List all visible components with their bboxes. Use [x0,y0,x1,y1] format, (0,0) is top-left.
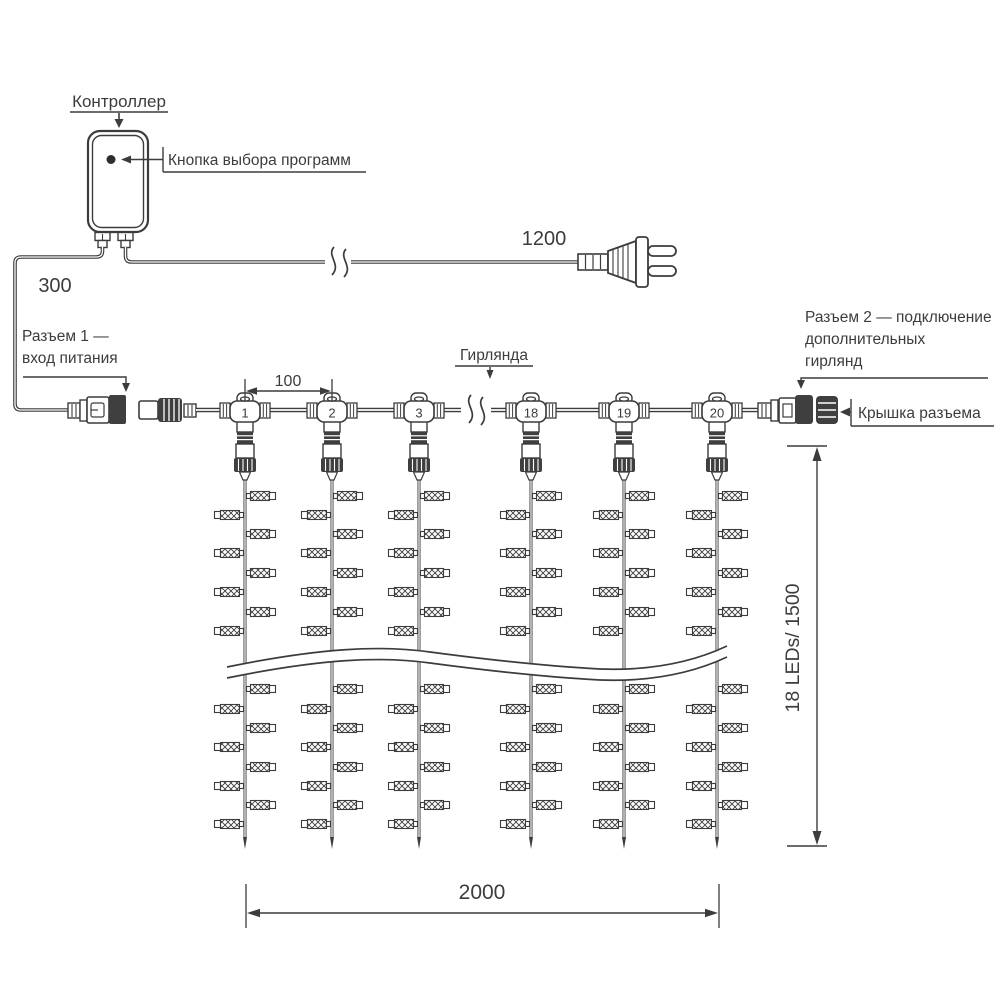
drop-taper [327,472,338,480]
led-lamp-body [221,782,240,791]
led-lamp-body [308,588,327,597]
led-lamp-body [630,608,649,617]
led-lamp [389,782,418,791]
led-lamp [389,627,418,636]
led-lamp [215,820,244,829]
led-lamp [594,549,623,558]
connector2-arrow-head [797,380,805,389]
led-lamp-body [338,724,357,733]
garland-arrow-head [487,370,494,379]
led-lamp [719,608,748,617]
led-lamp-body [600,743,619,752]
drop-taper [240,472,251,480]
led-lamp-body [251,492,270,501]
drop-ribbed-block [616,432,632,444]
led-lamp [719,801,748,810]
led-lamp-body [395,743,414,752]
strand-tip [715,837,719,849]
drop-number: 3 [415,406,422,421]
led-lamp-body [251,724,270,733]
t-coupling [307,403,317,418]
led-lamp [389,511,418,520]
curtain-width-value: 2000 [459,881,506,904]
drop-socket-body [615,444,633,458]
t-hanging-hole [620,397,629,401]
end-connector-ring [771,400,778,421]
plug-face [636,237,648,287]
led-lamp-body [338,608,357,617]
led-lamp [302,627,331,636]
led-lamp-body [425,685,444,694]
drop-knurled-nut [321,458,343,472]
led-lamp [215,627,244,636]
led-lamp [533,492,562,501]
led-lamp-body [251,801,270,810]
led-lamp [389,820,418,829]
led-lamp [302,588,331,597]
drop-number: 20 [710,406,724,421]
led-lamp-body [723,685,742,694]
connector1-callout: Разъем 1 — вход питания [22,328,130,392]
led-lamp-body [221,743,240,752]
led-lamp-body [723,724,742,733]
drop-ribbed-block [709,432,725,444]
led-lamp-body [630,724,649,733]
led-lamp-body [308,627,327,636]
led-lamp [626,801,655,810]
led-lamp [719,763,748,772]
led-lamp [247,569,276,578]
connector2-label-line1: Разъем 2 — подключение [805,309,992,326]
drop-socket-body [410,444,428,458]
led-lamp [247,492,276,501]
power-cord-outline [126,247,581,262]
drop-taper [712,472,723,480]
led-lamp-body [221,820,240,829]
led-lamp [247,724,276,733]
drop-number: 1 [241,406,248,421]
led-lamp [719,685,748,694]
led-lamp [389,549,418,558]
led-lamp [719,724,748,733]
led-lamp [215,549,244,558]
drop-knurled-nut [706,458,728,472]
led-lamp-body [308,782,327,791]
connector1-label-line1: Разъем 1 — [22,328,109,345]
led-lamp-body [395,705,414,714]
led-lamp [334,608,363,617]
t-coupling [599,403,609,418]
led-lamp [719,569,748,578]
led-lamp-body [221,705,240,714]
connector1-arrow-head [122,383,130,392]
led-lamp [594,820,623,829]
t-hanging-hole [527,397,536,401]
drop-knurled-nut [234,458,256,472]
led-lamp [421,608,450,617]
led-lamp [421,569,450,578]
garland-drop: 1 [215,393,276,849]
led-lamp [687,705,716,714]
led-lamp-body [251,569,270,578]
led-lamp [421,492,450,501]
led-lamp-body [723,763,742,772]
led-lamp [533,569,562,578]
led-lamp-body [425,724,444,733]
led-lamp [421,763,450,772]
drop-taper [526,472,537,480]
band-fill [227,646,727,680]
t-coupling [260,403,270,418]
led-lamp [334,801,363,810]
t-coupling [347,403,357,418]
controller-label: Контроллер [72,92,166,111]
led-lamp [687,782,716,791]
strand-tip [417,837,421,849]
led-lamp [594,588,623,597]
led-lamp [594,627,623,636]
end-connector-body-detail [783,404,792,417]
led-lamp [594,782,623,791]
led-lamp-body [221,627,240,636]
garland-drops: 123181920 [215,393,748,849]
strand-tip [529,837,533,849]
program-button-dot[interactable] [107,155,116,164]
led-lamp-body [507,820,526,829]
end-connector-ribbed [758,403,771,418]
led-lamp-body [338,685,357,694]
led-lamp [389,743,418,752]
led-lamp [687,820,716,829]
led-lamp [389,705,418,714]
drop-spacing-value: 100 [275,373,302,390]
led-lamp [334,492,363,501]
led-lamp-body [507,549,526,558]
led-lamp-body [425,763,444,772]
led-lamp [533,530,562,539]
led-lamp-body [693,820,712,829]
led-lamp [302,743,331,752]
drop-ribbed-block [411,432,427,444]
led-lamp [687,549,716,558]
led-lamp-body [630,530,649,539]
connector2-label-line3: гирлянд [805,353,862,370]
led-lamp-body [693,549,712,558]
led-lamp-body [395,820,414,829]
led-lamp-body [600,511,619,520]
drop-ribbed-block [523,432,539,444]
led-lamp [215,782,244,791]
power-plug [578,237,676,287]
t-coupling [434,403,444,418]
led-lamp [302,782,331,791]
led-lamp [247,608,276,617]
led-lamp-body [600,627,619,636]
garland-callout: Гирлянда [455,347,533,379]
led-lamp-body [600,820,619,829]
garland-start-connector [139,398,196,422]
led-lamp [215,705,244,714]
drop-ribbed-block [237,432,253,444]
led-lamp-body [251,530,270,539]
curtain-width-dimension: 2000 [246,881,719,928]
led-lamp-body [221,588,240,597]
led-lamp-body [507,588,526,597]
power-cord: 1200 [126,228,581,277]
led-lamp-body [630,763,649,772]
led-lamp-body [723,569,742,578]
led-lamp [533,724,562,733]
controller-body-inner [93,136,144,228]
connector1-leader [23,377,126,384]
led-lamp [687,627,716,636]
led-lamp [389,588,418,597]
led-lamp-body [600,705,619,714]
led-lamp [719,530,748,539]
led-lamp [334,569,363,578]
connector1-power-input [68,395,126,424]
led-lamp-body [308,511,327,520]
cap-callout: Крышка разъема [840,399,994,426]
garland-drop: 18 [501,393,562,849]
led-lamp-body [723,801,742,810]
led-lamp-body [693,782,712,791]
cap-label: Крышка разъема [858,405,981,422]
led-lamp [626,685,655,694]
t-coupling [692,403,702,418]
lead-in-dimension: 300 [38,275,71,297]
t-coupling [639,403,649,418]
t-coupling [394,403,404,418]
strand-tip [243,837,247,849]
led-lamp-body [395,511,414,520]
drop-number: 19 [617,406,631,421]
led-lamp [594,511,623,520]
plug-body [608,241,636,283]
led-lamp [247,530,276,539]
led-lamp [421,724,450,733]
led-lamp-body [630,801,649,810]
led-lamp-body [537,492,556,501]
controller-outlet-right [118,233,133,248]
garland-cable [196,395,758,425]
led-lamp [334,724,363,733]
garland-label: Гирлянда [460,347,528,364]
led-lamp-body [221,511,240,520]
led-lamp-body [630,569,649,578]
t-coupling [220,403,230,418]
led-lamp [533,685,562,694]
garland-drop: 3 [389,393,450,849]
led-lamp-body [425,530,444,539]
led-lamp-body [537,569,556,578]
led-lamp-body [251,763,270,772]
led-lamp-body [723,492,742,501]
led-lamp [687,743,716,752]
led-lamp [687,588,716,597]
t-coupling [506,403,516,418]
led-lamp [247,685,276,694]
led-lamp [501,782,530,791]
power-cord-dimension: 1200 [522,228,567,250]
led-lamp-body [251,685,270,694]
led-lamp-body [308,743,327,752]
drop-taper [414,472,425,480]
led-lamp-body [308,705,327,714]
led-lamp-body [630,685,649,694]
led-lamp-body [600,588,619,597]
led-lamp-body [338,492,357,501]
connector2-callout: Разъем 2 — подключение дополнительных ги… [797,309,992,389]
drop-taper [619,472,630,480]
led-lamp-body [338,569,357,578]
led-lamp-body [537,530,556,539]
drop-socket-body [708,444,726,458]
led-lamp [533,608,562,617]
led-lamp-body [425,608,444,617]
connector1-label-line2: вход питания [22,350,118,367]
plug-prong [648,266,676,276]
led-lamp [334,685,363,694]
led-lamp [501,705,530,714]
led-lamp [626,724,655,733]
led-lamp [215,743,244,752]
drop-knurled-nut [408,458,430,472]
plug-prong [648,246,676,256]
led-lamp [719,492,748,501]
led-lamp-body [537,685,556,694]
led-lamp [302,511,331,520]
t-hanging-hole [415,397,424,401]
led-lamp-body [693,627,712,636]
led-lamp [501,627,530,636]
controller-arrow-head [115,119,124,128]
controller-outlet-left [95,233,110,248]
garland-drop: 20 [687,393,748,849]
led-lamp [626,492,655,501]
led-lamp [594,743,623,752]
led-lamp-body [693,588,712,597]
led-lamp-body [308,820,327,829]
garland-drop: 2 [302,393,363,849]
led-lamp-body [308,549,327,558]
connector2-label-line2: дополнительных [805,331,925,348]
led-lamp-body [425,569,444,578]
led-lamp [302,549,331,558]
strand-tip [330,837,334,849]
led-lamp [501,588,530,597]
led-lamp-body [338,530,357,539]
led-lamp-body [693,743,712,752]
led-lamp [533,763,562,772]
drop-number: 18 [524,406,538,421]
power-cord-core [126,247,581,262]
drop-ribbed-block [324,432,340,444]
led-lamp-body [507,511,526,520]
led-lamp [626,530,655,539]
led-curtain-diagram: Контроллер Кнопка выбора программ 300 [0,0,1000,1000]
led-lamp [501,549,530,558]
led-lamp-body [507,743,526,752]
garland-drop: 19 [594,393,655,849]
t-hanging-hole [713,397,722,401]
curtain-break-band [227,646,727,680]
drop-spacing-dimension: 100 [245,373,332,402]
led-lamp-body [221,549,240,558]
led-lamp [594,705,623,714]
strand-dimension: 18 LEDs/ 1500 [782,446,827,846]
led-lamp-body [693,705,712,714]
led-lamp [334,530,363,539]
led-lamp [247,801,276,810]
garland-break-mask [461,396,491,424]
led-lamp-body [338,801,357,810]
led-lamp [302,705,331,714]
led-lamp [501,743,530,752]
controller-group: Контроллер Кнопка выбора программ [70,92,366,248]
strand-tip [622,837,626,849]
led-lamp [626,763,655,772]
led-lamp-body [600,549,619,558]
drop-number: 2 [328,406,335,421]
led-lamp [501,511,530,520]
led-lamp [421,801,450,810]
program-button-label: Кнопка выбора программ [168,152,351,169]
led-lamp-body [537,801,556,810]
drop-socket-body [522,444,540,458]
end-connector-socket [795,395,813,424]
led-lamp-body [507,705,526,714]
led-lamp [334,763,363,772]
led-lamp-body [537,608,556,617]
led-lamp-body [537,763,556,772]
t-coupling [732,403,742,418]
led-lamp [421,685,450,694]
led-lamp-body [723,530,742,539]
led-lamp-body [425,492,444,501]
drop-knurled-nut [613,458,635,472]
led-lamp [215,588,244,597]
led-lamp-body [630,492,649,501]
led-lamp-body [395,588,414,597]
connector1-ribbed [68,403,80,418]
led-lamp [687,511,716,520]
led-lamp-body [338,763,357,772]
connector2-leader [801,378,988,381]
led-lamp-body [395,782,414,791]
led-lamp-body [600,782,619,791]
connector1-ring [80,400,87,421]
garland-end-connector [758,395,838,424]
led-lamp [501,820,530,829]
led-lamp-body [537,724,556,733]
led-lamp-body [251,608,270,617]
start-connector-plug [139,401,158,419]
drop-knurled-nut [520,458,542,472]
t-coupling [546,403,556,418]
led-lamp-body [723,608,742,617]
led-lamp-body [507,782,526,791]
led-lamp-body [395,549,414,558]
led-lamp-body [425,801,444,810]
led-lamp-body [507,627,526,636]
led-lamp [421,530,450,539]
drop-socket-body [236,444,254,458]
led-lamp [302,820,331,829]
led-lamp-body [693,511,712,520]
led-lamp [626,608,655,617]
led-lamp [533,801,562,810]
